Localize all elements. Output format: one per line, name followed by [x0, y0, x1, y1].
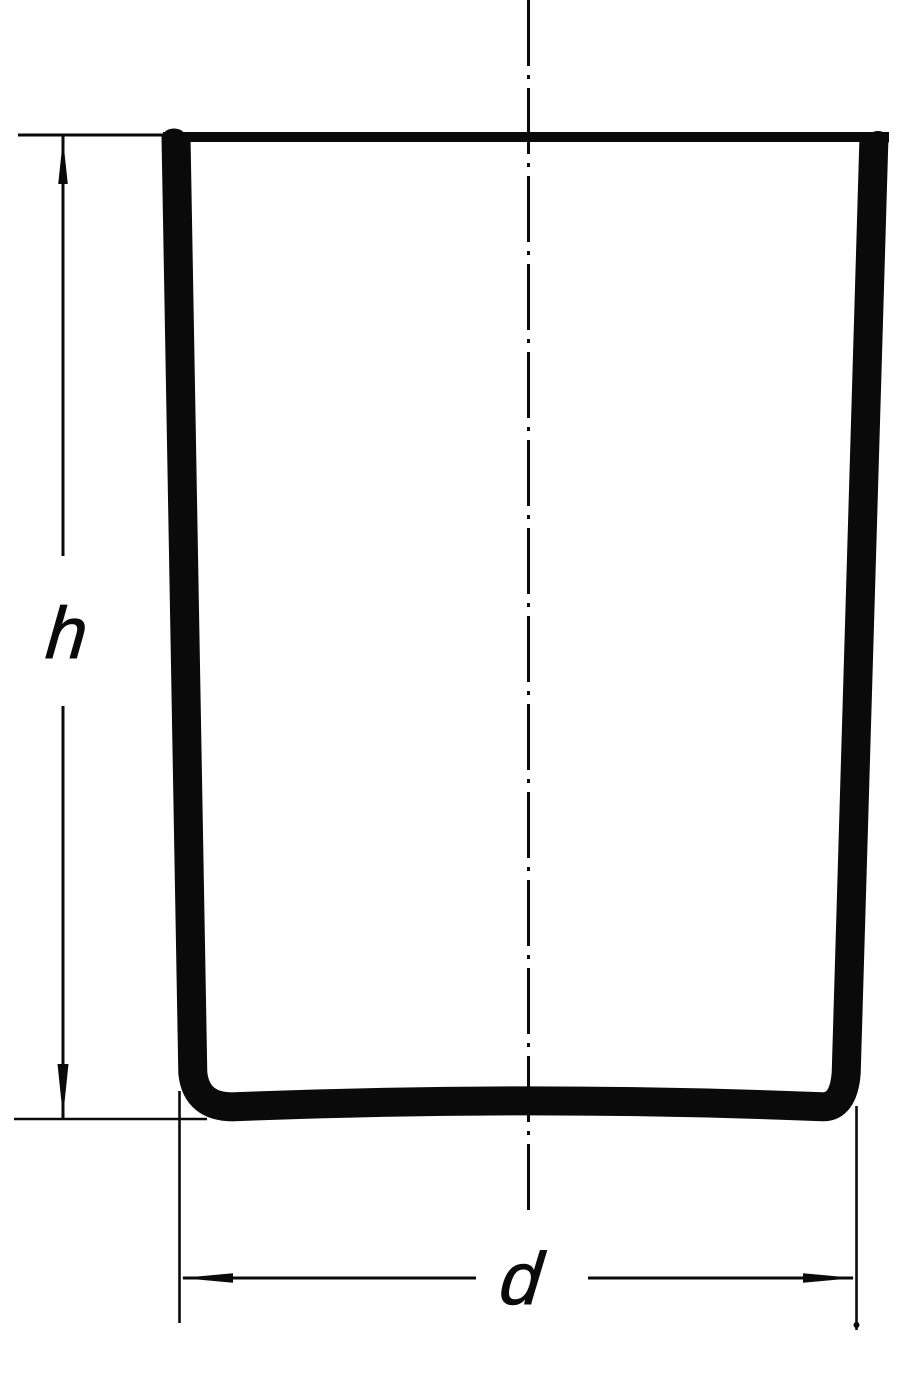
svg-text:h: h: [43, 593, 91, 674]
svg-text:d: d: [496, 1237, 549, 1320]
